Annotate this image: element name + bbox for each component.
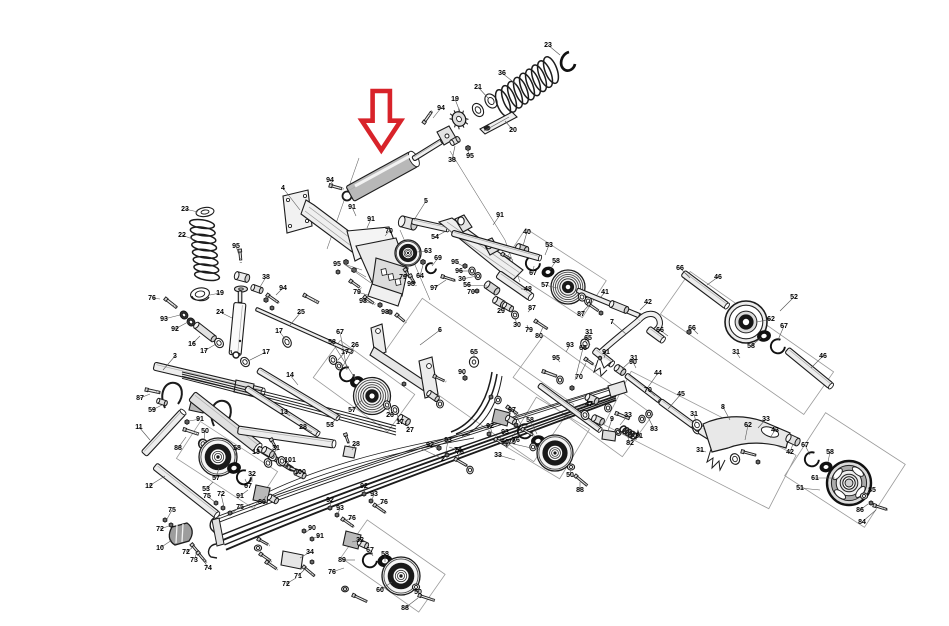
svg-text:58: 58	[233, 445, 241, 452]
svg-text:30: 30	[513, 322, 521, 329]
svg-text:50: 50	[201, 428, 209, 435]
svg-text:20: 20	[509, 127, 517, 134]
svg-text:75: 75	[236, 504, 244, 511]
svg-text:38: 38	[262, 274, 270, 281]
svg-text:79: 79	[353, 289, 361, 296]
svg-text:57: 57	[212, 475, 220, 482]
svg-text:93: 93	[501, 429, 509, 436]
svg-text:92: 92	[486, 423, 494, 430]
svg-text:70: 70	[467, 289, 475, 296]
svg-text:67: 67	[801, 442, 809, 449]
svg-text:52: 52	[790, 294, 798, 301]
svg-text:70: 70	[644, 387, 652, 394]
svg-text:42: 42	[644, 299, 652, 306]
svg-text:91: 91	[496, 212, 504, 219]
svg-text:89: 89	[338, 557, 346, 564]
svg-text:91: 91	[236, 493, 244, 500]
svg-text:19: 19	[216, 290, 224, 297]
svg-text:57: 57	[541, 282, 549, 289]
svg-text:42: 42	[786, 449, 794, 456]
svg-text:87: 87	[528, 305, 536, 312]
svg-text:32: 32	[248, 471, 256, 478]
svg-text:24: 24	[216, 309, 224, 316]
svg-text:71: 71	[294, 573, 302, 580]
svg-text:33: 33	[624, 412, 632, 419]
svg-text:62: 62	[744, 422, 752, 429]
svg-text:91: 91	[367, 216, 375, 223]
svg-text:73: 73	[190, 557, 198, 564]
svg-text:61: 61	[811, 475, 819, 482]
svg-text:81: 81	[635, 433, 643, 440]
svg-text:2: 2	[441, 456, 445, 463]
svg-text:58: 58	[747, 343, 755, 350]
svg-text:92: 92	[326, 497, 334, 504]
svg-text:45: 45	[677, 391, 685, 398]
svg-text:26: 26	[386, 412, 394, 419]
svg-text:11: 11	[135, 424, 143, 431]
svg-text:36: 36	[498, 70, 506, 77]
svg-text:91: 91	[316, 533, 324, 540]
svg-text:96: 96	[455, 268, 463, 275]
svg-text:58: 58	[526, 417, 534, 424]
svg-text:58: 58	[826, 449, 834, 456]
svg-text:93: 93	[160, 316, 168, 323]
svg-text:95: 95	[232, 243, 240, 250]
svg-text:10: 10	[156, 545, 164, 552]
svg-text:16: 16	[188, 341, 196, 348]
svg-text:94: 94	[437, 105, 445, 112]
svg-text:88: 88	[401, 605, 409, 612]
svg-text:67: 67	[366, 547, 374, 554]
svg-text:100: 100	[294, 469, 306, 476]
svg-text:92: 92	[171, 326, 179, 333]
svg-text:76: 76	[148, 295, 156, 302]
svg-text:83: 83	[650, 426, 658, 433]
svg-text:72: 72	[217, 491, 225, 498]
svg-text:27: 27	[406, 427, 414, 434]
svg-text:79: 79	[525, 327, 533, 334]
svg-text:93: 93	[566, 342, 574, 349]
svg-text:91: 91	[196, 416, 204, 423]
svg-text:67: 67	[336, 329, 344, 336]
svg-text:82: 82	[626, 440, 634, 447]
svg-text:75: 75	[168, 507, 176, 514]
svg-text:65: 65	[584, 335, 592, 342]
svg-text:53: 53	[326, 422, 334, 429]
svg-text:22: 22	[178, 232, 186, 239]
svg-text:67: 67	[529, 270, 537, 277]
svg-text:90: 90	[458, 369, 466, 376]
svg-text:28: 28	[352, 441, 360, 448]
svg-text:6: 6	[438, 327, 442, 334]
svg-text:31: 31	[272, 445, 280, 452]
svg-text:88: 88	[576, 487, 584, 494]
svg-text:19: 19	[451, 96, 459, 103]
svg-text:46: 46	[819, 353, 827, 360]
svg-text:33: 33	[762, 416, 770, 423]
svg-text:54: 54	[431, 234, 439, 241]
svg-text:87: 87	[577, 311, 585, 318]
svg-text:53: 53	[202, 486, 210, 493]
svg-text:40: 40	[523, 229, 531, 236]
svg-text:51: 51	[796, 485, 804, 492]
svg-text:63: 63	[424, 248, 432, 255]
svg-text:66: 66	[688, 325, 696, 332]
svg-text:41: 41	[601, 289, 609, 296]
svg-text:94: 94	[326, 177, 334, 184]
svg-text:48: 48	[524, 286, 532, 293]
svg-text:14: 14	[286, 372, 294, 379]
svg-text:57: 57	[348, 407, 356, 414]
svg-text:87: 87	[136, 395, 144, 402]
svg-text:50: 50	[414, 589, 422, 596]
svg-text:91: 91	[348, 204, 356, 211]
svg-text:79: 79	[399, 274, 407, 281]
svg-text:26: 26	[351, 342, 359, 349]
svg-text:17: 17	[275, 328, 283, 335]
svg-text:88: 88	[174, 445, 182, 452]
svg-text:17: 17	[200, 348, 208, 355]
svg-text:67: 67	[244, 483, 252, 490]
svg-text:72: 72	[282, 581, 290, 588]
svg-text:95: 95	[552, 355, 560, 362]
svg-text:84: 84	[858, 519, 866, 526]
svg-text:60: 60	[376, 587, 384, 594]
svg-text:33: 33	[494, 452, 502, 459]
svg-text:75: 75	[203, 493, 211, 500]
svg-text:93: 93	[370, 491, 378, 498]
svg-text:8: 8	[721, 404, 725, 411]
svg-text:72: 72	[182, 549, 190, 556]
svg-text:58: 58	[552, 258, 560, 265]
svg-text:38: 38	[448, 157, 456, 164]
svg-text:31: 31	[690, 411, 698, 418]
svg-text:44: 44	[654, 370, 662, 377]
svg-text:25: 25	[297, 309, 305, 316]
svg-text:31: 31	[696, 447, 704, 454]
svg-text:92: 92	[426, 442, 434, 449]
svg-text:13: 13	[252, 449, 260, 456]
svg-text:89: 89	[258, 499, 266, 506]
svg-text:12: 12	[145, 483, 153, 490]
svg-text:50: 50	[566, 472, 574, 479]
svg-text:65: 65	[470, 349, 478, 356]
svg-text:70: 70	[385, 228, 393, 235]
svg-text:74: 74	[454, 447, 462, 454]
svg-text:95: 95	[466, 153, 474, 160]
svg-text:76: 76	[380, 499, 388, 506]
svg-text:76: 76	[512, 437, 520, 444]
svg-text:3: 3	[173, 353, 177, 360]
svg-text:21: 21	[474, 84, 482, 91]
svg-text:95: 95	[333, 261, 341, 268]
svg-text:66: 66	[579, 345, 587, 352]
svg-text:53: 53	[545, 242, 553, 249]
svg-text:23: 23	[544, 42, 552, 49]
svg-text:43: 43	[771, 427, 779, 434]
svg-text:29: 29	[497, 308, 505, 315]
svg-text:67: 67	[508, 407, 516, 414]
svg-text:90: 90	[308, 525, 316, 532]
svg-text:95: 95	[451, 259, 459, 266]
svg-text:92: 92	[360, 483, 368, 490]
svg-text:72: 72	[156, 526, 164, 533]
svg-text:76: 76	[348, 515, 356, 522]
svg-text:58: 58	[328, 339, 336, 346]
svg-text:34: 34	[306, 549, 314, 556]
svg-text:91: 91	[602, 349, 610, 356]
svg-text:58: 58	[381, 551, 389, 558]
svg-text:56: 56	[463, 282, 471, 289]
svg-text:46: 46	[714, 274, 722, 281]
svg-text:32: 32	[356, 537, 364, 544]
svg-text:93: 93	[444, 437, 452, 444]
svg-text:7: 7	[610, 319, 614, 326]
svg-text:94: 94	[279, 285, 287, 292]
svg-text:5: 5	[424, 198, 428, 205]
svg-text:28: 28	[299, 424, 307, 431]
svg-text:98: 98	[381, 309, 389, 316]
svg-text:62: 62	[767, 316, 775, 323]
svg-text:13: 13	[280, 409, 288, 416]
svg-text:98: 98	[407, 281, 415, 288]
svg-text:17: 17	[396, 419, 404, 426]
svg-text:76: 76	[328, 569, 336, 576]
svg-text:66: 66	[656, 327, 664, 334]
svg-text:23: 23	[181, 206, 189, 213]
svg-text:69: 69	[434, 255, 442, 262]
svg-text:17: 17	[262, 349, 270, 356]
svg-text:64: 64	[416, 273, 424, 280]
svg-text:93: 93	[336, 505, 344, 512]
svg-text:86: 86	[856, 507, 864, 514]
svg-text:4: 4	[281, 185, 285, 192]
svg-text:66: 66	[676, 265, 684, 272]
svg-text:80: 80	[535, 333, 543, 340]
svg-text:98: 98	[359, 298, 367, 305]
svg-text:17: 17	[341, 349, 349, 356]
svg-text:101: 101	[284, 457, 296, 464]
svg-text:67: 67	[780, 323, 788, 330]
svg-text:47: 47	[585, 401, 593, 408]
svg-text:31: 31	[732, 349, 740, 356]
svg-text:59: 59	[148, 407, 156, 414]
svg-text:74: 74	[204, 565, 212, 572]
svg-text:9: 9	[610, 416, 614, 423]
svg-text:97: 97	[430, 285, 438, 292]
svg-text:85: 85	[868, 487, 876, 494]
svg-text:90: 90	[629, 359, 637, 366]
